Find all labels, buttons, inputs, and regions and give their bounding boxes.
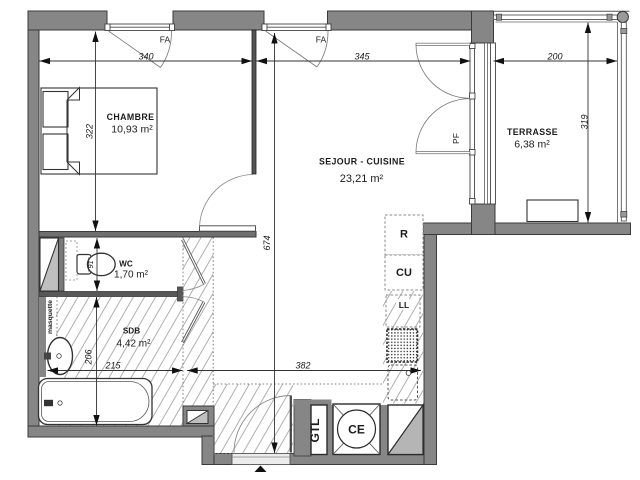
svg-text:FA: FA [160,35,171,45]
svg-text:4,42 m²: 4,42 m² [117,339,152,350]
svg-text:FA: FA [316,35,327,45]
svg-text:200: 200 [546,52,562,62]
svg-text:382: 382 [295,361,310,371]
svg-text:206: 206 [84,349,94,365]
svg-text:91: 91 [86,260,95,268]
svg-text:CE: CE [348,423,365,437]
svg-text:WC: WC [119,260,133,269]
svg-text:345: 345 [354,52,370,62]
svg-text:6,38 m²: 6,38 m² [514,139,550,151]
svg-text:R: R [400,229,408,241]
svg-text:SEJOUR - CUISINE: SEJOUR - CUISINE [319,157,405,167]
svg-text:322: 322 [85,124,95,139]
svg-text:674: 674 [262,235,272,250]
svg-text:340: 340 [138,52,153,62]
svg-text:LL: LL [399,300,409,310]
svg-text:215: 215 [104,361,121,371]
svg-text:23,21 m²: 23,21 m² [340,173,384,185]
svg-text:GTL: GTL [308,419,322,443]
svg-text:1,70 m²: 1,70 m² [114,270,149,281]
svg-text:10,93 m²: 10,93 m² [111,124,153,136]
svg-text:CHAMBRE: CHAMBRE [107,112,155,122]
svg-text:CU: CU [396,267,412,279]
svg-text:PF: PF [451,133,461,144]
svg-text:masquette: masquette [47,300,54,334]
svg-text:319: 319 [580,114,590,129]
svg-text:TERRASSE: TERRASSE [507,127,558,137]
svg-text:SDB: SDB [123,327,140,336]
